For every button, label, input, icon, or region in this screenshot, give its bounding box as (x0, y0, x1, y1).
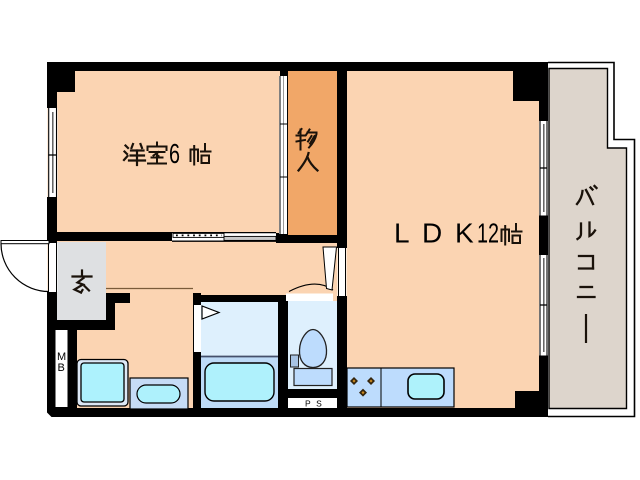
svg-text:D: D (422, 218, 442, 249)
svg-text:K: K (455, 218, 474, 249)
svg-text:B: B (58, 362, 65, 374)
svg-text:PS: PS (305, 399, 327, 409)
svg-text:12: 12 (477, 218, 499, 249)
svg-text:L: L (394, 218, 410, 249)
svg-text:6: 6 (169, 138, 180, 169)
